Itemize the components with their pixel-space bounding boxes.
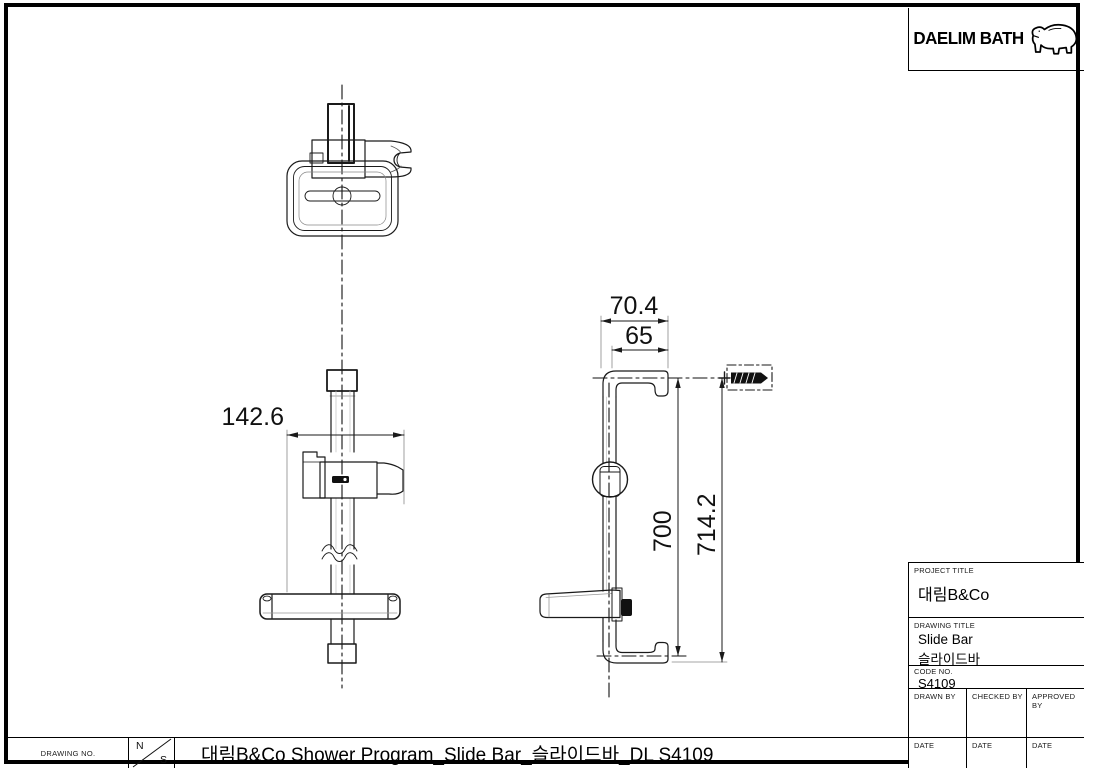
project-title-label: PROJECT TITLE [909,563,1084,575]
drawn-by-cell: DRAWN BY [909,689,967,737]
approved-by-cell: APPROVED BY [1027,689,1083,737]
scale-s-label: S [160,754,167,766]
drawing-title-line2: 슬라이드바 [909,647,1084,668]
dates-row: DATE DATE DATE [909,738,1084,768]
checked-by-label: CHECKED BY [967,689,1026,701]
polar-bear-icon [1028,18,1080,60]
drawing-no-label: DRAWING NO. [41,749,96,758]
drawing-sheet: 142.6 [0,0,1093,778]
drawing-title-label: DRAWING TITLE [909,618,1084,630]
scale-n-label: N [136,740,144,752]
signatures-row: DRAWN BY CHECKED BY APPROVED BY [909,689,1084,738]
date-label-1: DATE [909,738,966,750]
logo-box: DAELIM BATH [908,8,1084,71]
scale-box: N S [129,738,175,768]
date-cell-2: DATE [967,738,1027,768]
date-cell-1: DATE [909,738,967,768]
title-block: PROJECT TITLE 대림B&Co DRAWING TITLE Slide… [908,562,1084,768]
footer-strip: DRAWING NO. N S 대림B&Co Shower Program_Sl… [8,737,908,768]
brand-logo-text: DAELIM BATH [913,29,1023,50]
drawn-by-label: DRAWN BY [909,689,966,701]
project-title-row: PROJECT TITLE 대림B&Co [909,563,1084,618]
date-label-2: DATE [967,738,1026,750]
project-title-value: 대림B&Co [909,575,1084,605]
footer-title: 대림B&Co Shower Program_Slide Bar_슬라이드바_DL… [175,738,908,768]
drawing-no-cell: DRAWING NO. [8,738,129,768]
drawing-title-line1: Slide Bar [909,630,1084,647]
date-cell-3: DATE [1027,738,1083,768]
approved-by-label: APPROVED BY [1027,689,1083,710]
code-no-row: CODE NO. S4109 [909,666,1084,689]
date-label-3: DATE [1027,738,1083,750]
checked-by-cell: CHECKED BY [967,689,1027,737]
drawing-title-row: DRAWING TITLE Slide Bar 슬라이드바 [909,618,1084,666]
code-no-label: CODE NO. [909,666,1084,676]
